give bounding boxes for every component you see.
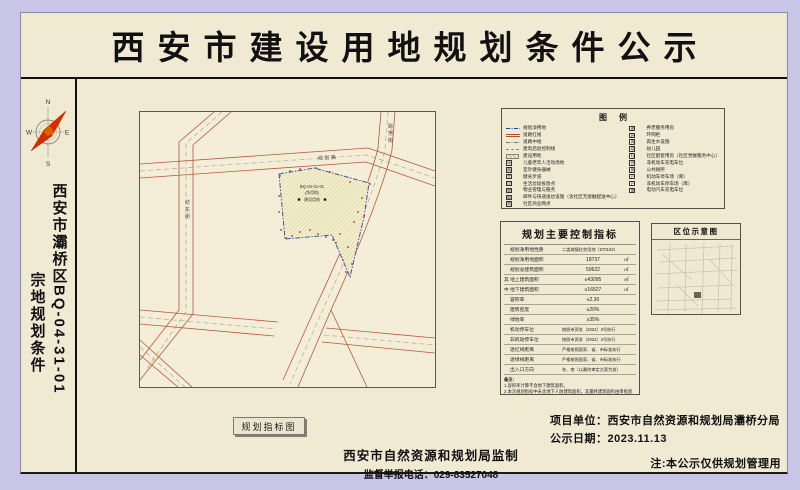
indicator-unit: ㎡ bbox=[624, 267, 636, 273]
legend-label: 非机动车充电车位 bbox=[646, 160, 683, 166]
fitness-trail-icon: 步 bbox=[506, 174, 521, 180]
road-redlines bbox=[140, 112, 435, 387]
indicator-value: 严格按照国家、省、市标准执行 bbox=[562, 347, 624, 353]
indicator-label: 非机动停车位 bbox=[510, 336, 562, 343]
indicator-row: 非机动停车位按照市资发〔2022〕3号执行 bbox=[504, 335, 636, 345]
location-inset-title: 区位示意图 bbox=[652, 224, 740, 240]
legend-item: 建设用地 bbox=[506, 153, 629, 160]
svg-text:S: S bbox=[46, 161, 51, 168]
hotline-line: 监督举报电话：029-83527048 bbox=[291, 466, 571, 481]
legend-item: 物物业管理与服务 bbox=[506, 187, 629, 194]
legend-title: 图例 bbox=[506, 112, 720, 123]
indicator-value: 二类城镇住宅用地（070102） bbox=[562, 247, 624, 253]
legend-item: P非机动车停车场（库） bbox=[629, 180, 720, 187]
community-room-icon: 社 bbox=[629, 153, 644, 159]
parcel-sub-label-2: 建设用地 bbox=[304, 196, 320, 202]
legend-label: 邮件与快递送达设施（含社区无接触配送中心） bbox=[523, 194, 619, 200]
site-plan-map: BQ-04-31-01 (净用地) 建设用地 规划路 bbox=[139, 111, 436, 388]
legend-item: 幼幼儿园 bbox=[629, 146, 720, 153]
indicator-value: ≥35% bbox=[562, 317, 624, 323]
road-label-guihua-lu: 规划路 bbox=[318, 154, 338, 162]
legend-label: 道路红线 bbox=[523, 132, 541, 138]
legend-item: P机动车停车场（库） bbox=[629, 173, 720, 180]
legend-label: 电动汽车充电车位 bbox=[646, 187, 683, 193]
legend-label: 非机动车停车场（库） bbox=[646, 181, 692, 187]
legend-right-column: 老养老服务用房环环网柜再再生水设施幼幼儿园社社区配套用房（社区党群服务中心）充非… bbox=[629, 125, 720, 208]
location-sketch-map bbox=[652, 240, 740, 316]
legend-label: 室外健身器械 bbox=[523, 167, 551, 173]
legend-item: 邮邮件与快递送达设施（含社区无接触配送中心） bbox=[506, 194, 629, 201]
indicator-row: 退红线距离严格按照国家、省、市标准执行 bbox=[504, 345, 636, 355]
legend-label: 建设用地 bbox=[523, 153, 541, 159]
indicator-label: 规划总建筑面积 bbox=[510, 266, 562, 273]
project-unit-line: 项目单位：西安市自然资源和规划局灞桥分局 bbox=[550, 412, 786, 430]
indicator-row: 规划净用地面积18737㎡ bbox=[504, 255, 636, 265]
road-label-fangdong-jie: 纺东街 bbox=[185, 199, 192, 220]
property-service-icon: 物 bbox=[506, 188, 521, 194]
indicator-label: 建筑密度 bbox=[510, 306, 562, 313]
indicator-notes: 备注:1.容积率计算不含地下建筑面积。2.本次规划指标中未含地下人防建筑面积，其… bbox=[504, 377, 636, 395]
compass-icon: N W E S bbox=[25, 95, 71, 169]
svg-text:W: W bbox=[26, 130, 33, 137]
project-info: 项目单位：西安市自然资源和规划局灞桥分局 公示日期：2023.11.13 bbox=[550, 412, 786, 448]
indicator-value: ≤43095 bbox=[562, 277, 624, 283]
indicator-label: 地上建筑面积 bbox=[510, 276, 562, 283]
map-caption-chip: 规划指标图 bbox=[233, 417, 305, 435]
indicator-row: 机动停车位按照市资发〔2022〕3号执行 bbox=[504, 325, 636, 335]
mail-delivery-icon: 邮 bbox=[506, 195, 521, 201]
legend-label: 社区配套用房（社区党群服务中心） bbox=[646, 153, 720, 159]
indicator-value: 18737 bbox=[562, 257, 624, 263]
indicator-label: 出入口方向 bbox=[510, 366, 562, 373]
indicator-label: 容积率 bbox=[510, 296, 562, 303]
svg-text:N: N bbox=[46, 99, 51, 106]
sidebar-vertical-title: 宗地规划条件 西安市灞桥区BQ-04-31-01 bbox=[21, 183, 75, 463]
nonmotor-parking-icon: P bbox=[629, 181, 644, 187]
indicator-table-box: 规划主要控制指标 规划净用地性质二类城镇住宅用地（070102）规划净用地面积1… bbox=[500, 221, 640, 395]
parcel-code-label: BQ-04-31-01 bbox=[300, 184, 325, 189]
indicator-label: 退红线距离 bbox=[510, 346, 562, 353]
community-business-icon: 商 bbox=[506, 201, 521, 207]
publish-date-line: 公示日期：2023.11.13 bbox=[550, 430, 786, 448]
usage-note-line: 注:本公示仅供规划管理用 bbox=[650, 455, 781, 471]
legend-label: 物业管理与服务 bbox=[523, 187, 555, 193]
supervisor-line: 西安市自然资源和规划局监制 bbox=[291, 445, 571, 464]
legend-item: 环环网柜 bbox=[629, 132, 720, 139]
construction-land-icon bbox=[506, 154, 521, 159]
kindergarten-icon: 幼 bbox=[629, 146, 644, 152]
indicator-row: 绿地率≥35% bbox=[504, 315, 636, 325]
legend-item: 厕公共厕所 bbox=[629, 166, 720, 173]
garbage-point-icon: 垃 bbox=[506, 181, 521, 187]
indicator-label: 退绿线距离 bbox=[510, 356, 562, 363]
nonmotor-charging-icon: 充 bbox=[629, 160, 644, 166]
ring-main-unit-icon: 环 bbox=[629, 133, 644, 139]
legend-label: 规划净用地 bbox=[523, 125, 546, 131]
indicator-row: 容积率≤2.30 bbox=[504, 295, 636, 305]
elderly-service-icon: 老 bbox=[629, 126, 644, 132]
legend-item: 道路红线 bbox=[506, 132, 629, 139]
legend-item: 充非机动车充电车位 bbox=[629, 159, 720, 166]
legend-item: 器室外健身器械 bbox=[506, 166, 629, 173]
legend-label: 健身步道 bbox=[523, 174, 541, 180]
indicator-row: 建筑密度≤20% bbox=[504, 305, 636, 315]
activity-ground-icon: 场 bbox=[506, 160, 521, 166]
reclaimed-water-icon: 再 bbox=[629, 139, 644, 145]
map-caption-label: 规划指标图 bbox=[241, 420, 296, 433]
legend-item: 老养老服务用房 bbox=[629, 125, 720, 132]
legend-item: 社社区配套用房（社区党群服务中心） bbox=[629, 153, 720, 160]
location-inset-box: 区位示意图 bbox=[651, 223, 741, 315]
motor-parking-icon: P bbox=[629, 174, 644, 180]
legend-label: 道路中线 bbox=[523, 139, 541, 145]
indicator-row: 其地上建筑面积≤43095㎡ bbox=[504, 275, 636, 285]
indicator-value: ≥16527 bbox=[562, 287, 624, 293]
road-label-kualeng-jie: 跨塄街 bbox=[388, 123, 395, 144]
legend-item: 建筑后退控制线 bbox=[506, 146, 629, 153]
legend-label: 建筑后退控制线 bbox=[523, 146, 555, 152]
location-site-marker bbox=[694, 292, 701, 298]
legend-label: 机动车停车场（库） bbox=[646, 174, 687, 180]
indicator-row: 出入口方向东、南（以最终审定方案为准） bbox=[504, 365, 636, 375]
indicator-unit: ㎡ bbox=[624, 257, 636, 263]
legend-label: 环网柜 bbox=[646, 132, 660, 138]
legend-item: 电电动汽车充电车位 bbox=[629, 187, 720, 194]
indicator-label: 规划净用地性质 bbox=[510, 246, 562, 253]
legend-label: 再生水设施 bbox=[646, 139, 669, 145]
indicator-label: 规划净用地面积 bbox=[510, 256, 562, 263]
legend-item: 步健身步道 bbox=[506, 173, 629, 180]
left-sidebar: N W E S 宗地规划条件 西安市灞桥区BQ-04-31-01 bbox=[21, 79, 77, 472]
legend-label: 生活垃圾投放点 bbox=[523, 181, 555, 187]
legend-item: 场儿童老年人活动场地 bbox=[506, 159, 629, 166]
indicator-value: 严格按照国家、省、市标准执行 bbox=[562, 357, 624, 363]
indicator-table-title: 规划主要控制指标 bbox=[504, 224, 636, 244]
vertical-title-line1: 西安市灞桥区BQ-04-31-01 bbox=[49, 183, 70, 463]
public-toilet-icon: 厕 bbox=[629, 167, 644, 173]
indicator-value: 59622 bbox=[562, 267, 624, 273]
road-centerline-icon bbox=[506, 142, 521, 143]
svg-text:E: E bbox=[65, 130, 70, 137]
legend-item: 垃生活垃圾投放点 bbox=[506, 180, 629, 187]
note-item: 2.本次规划指标中未含地下人防建筑面积，其最终建筑面积由审批部门审核确定。 bbox=[504, 389, 636, 395]
legend-label: 儿童老年人活动场地 bbox=[523, 160, 564, 166]
page-title: 西安市建设用地规划条件公示 bbox=[99, 21, 710, 69]
indicator-label: 地下建筑面积 bbox=[510, 286, 562, 293]
indicator-unit: ㎡ bbox=[624, 277, 636, 283]
setback-line-icon bbox=[506, 149, 521, 150]
legend-box: 图例 规划净用地道路红线道路中线建筑后退控制线建设用地场儿童老年人活动场地器室外… bbox=[501, 108, 725, 209]
title-bar: 西安市建设用地规划条件公示 bbox=[21, 13, 787, 79]
legend-item: 商社区商业网点 bbox=[506, 201, 629, 208]
indicator-value: 按照市资发〔2022〕3号执行 bbox=[562, 327, 624, 333]
indicator-value: 东、南（以最终审定方案为准） bbox=[562, 367, 624, 373]
ev-charging-icon: 电 bbox=[629, 188, 644, 194]
legend-item: 规划净用地 bbox=[506, 125, 629, 132]
legend-item: 再再生水设施 bbox=[629, 139, 720, 146]
legend-left-column: 规划净用地道路红线道路中线建筑后退控制线建设用地场儿童老年人活动场地器室外健身器… bbox=[506, 125, 629, 208]
legend-label: 幼儿园 bbox=[646, 146, 660, 152]
indicator-table: 规划净用地性质二类城镇住宅用地（070102）规划净用地面积18737㎡规划总建… bbox=[504, 244, 636, 375]
indicator-label: 绿地率 bbox=[510, 316, 562, 323]
legend-item: 道路中线 bbox=[506, 139, 629, 146]
notice-sheet: 西安市建设用地规划条件公示 N W E S 宗地规划条件 西安市灞桥区BQ-04… bbox=[20, 12, 788, 474]
fitness-equipment-icon: 器 bbox=[506, 167, 521, 173]
legend-label: 养老服务用房 bbox=[646, 125, 674, 131]
supervision-block: 西安市自然资源和规划局监制 监督举报电话：029-83527048 bbox=[291, 445, 571, 481]
indicator-row: 规划总建筑面积59622㎡ bbox=[504, 265, 636, 275]
legend-label: 社区商业网点 bbox=[523, 201, 551, 207]
road-redline-icon bbox=[506, 134, 521, 137]
vertical-title-line2: 宗地规划条件 bbox=[27, 272, 48, 374]
indicator-value: ≤20% bbox=[562, 307, 624, 313]
site-plan-drawing: BQ-04-31-01 (净用地) 建设用地 规划路 bbox=[140, 112, 435, 387]
indicator-row: 退绿线距离严格按照国家、省、市标准执行 bbox=[504, 355, 636, 365]
indicator-value: 按照市资发〔2022〕3号执行 bbox=[562, 337, 624, 343]
parcel-sub-label-1: (净用地) bbox=[305, 189, 320, 195]
indicator-label: 机动停车位 bbox=[510, 326, 562, 333]
indicator-row: 中地下建筑面积≥16527㎡ bbox=[504, 285, 636, 295]
indicator-unit: ㎡ bbox=[624, 287, 636, 293]
indicator-row: 规划净用地性质二类城镇住宅用地（070102） bbox=[504, 245, 636, 255]
legend-label: 公共厕所 bbox=[646, 167, 664, 173]
indicator-value: ≤2.30 bbox=[562, 297, 624, 303]
net-land-line-icon bbox=[506, 128, 521, 129]
